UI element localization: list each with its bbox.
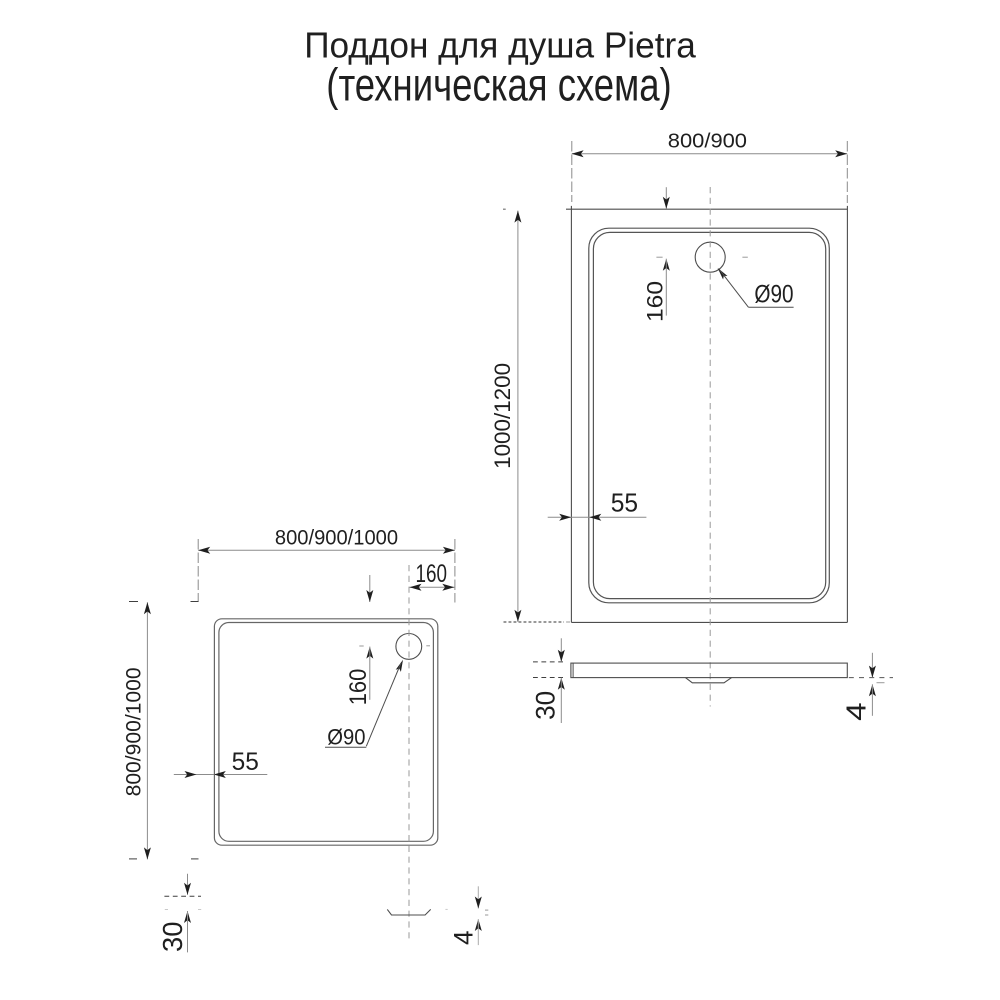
svg-text:4: 4 (449, 931, 479, 946)
svg-text:30: 30 (157, 921, 188, 952)
svg-text:160: 160 (345, 669, 372, 706)
svg-text:55: 55 (232, 748, 259, 776)
svg-text:Ø90: Ø90 (754, 280, 793, 308)
svg-text:800/900/1000: 800/900/1000 (275, 526, 398, 550)
svg-text:800/900: 800/900 (668, 131, 747, 153)
svg-text:55: 55 (611, 487, 638, 517)
svg-text:160: 160 (416, 560, 448, 588)
svg-text:Ø90: Ø90 (327, 725, 365, 750)
svg-text:(техническая схема): (техническая схема) (326, 59, 671, 111)
svg-text:800/900/1000: 800/900/1000 (122, 667, 146, 796)
svg-text:30: 30 (531, 691, 561, 720)
svg-text:1000/1200: 1000/1200 (490, 363, 515, 469)
svg-text:160: 160 (642, 281, 667, 322)
svg-text:4: 4 (840, 702, 871, 721)
